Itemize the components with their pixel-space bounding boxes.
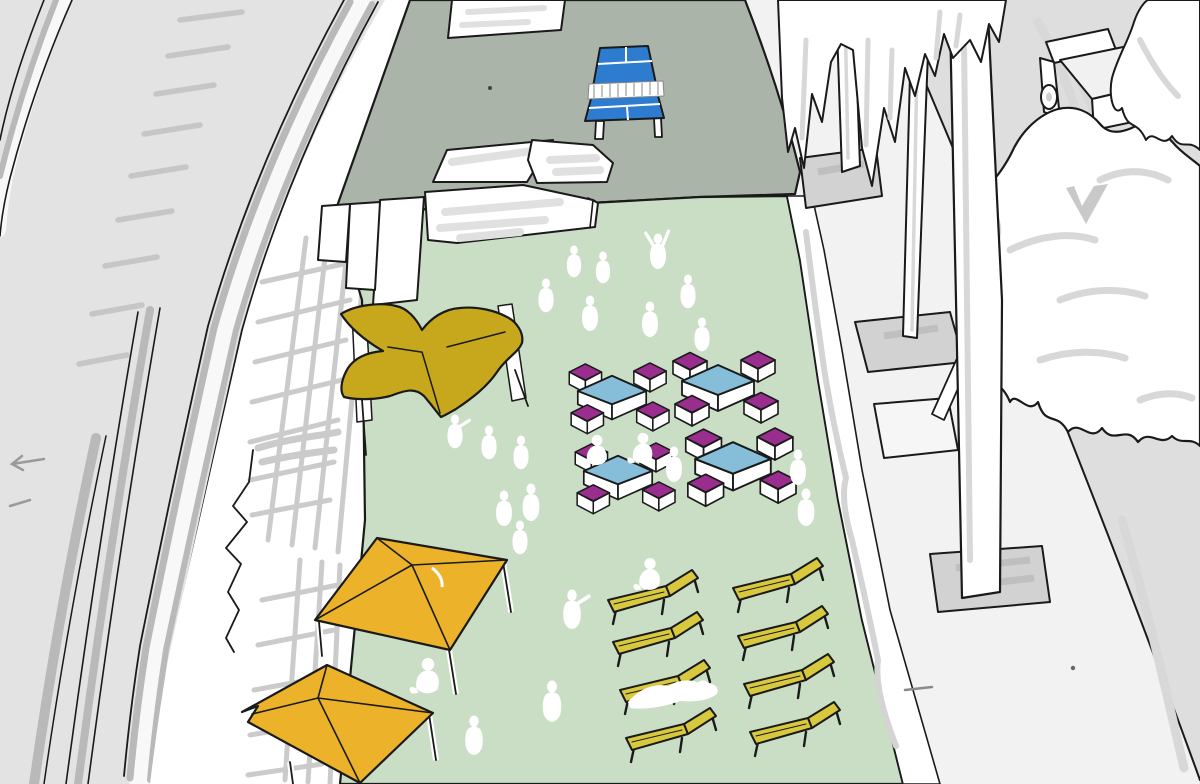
bench-block-left xyxy=(346,202,380,290)
lying-head xyxy=(696,681,711,696)
bench-block-left-small xyxy=(318,204,350,262)
pavement-dot xyxy=(488,86,492,90)
sidewalk-dot xyxy=(1071,666,1075,670)
plaza-sketch xyxy=(0,0,1200,784)
truck-hub xyxy=(1046,93,1052,102)
bench-block-left-tall xyxy=(373,197,424,305)
ping-pong-half-far xyxy=(593,46,656,87)
illustration-canvas xyxy=(0,0,1200,784)
